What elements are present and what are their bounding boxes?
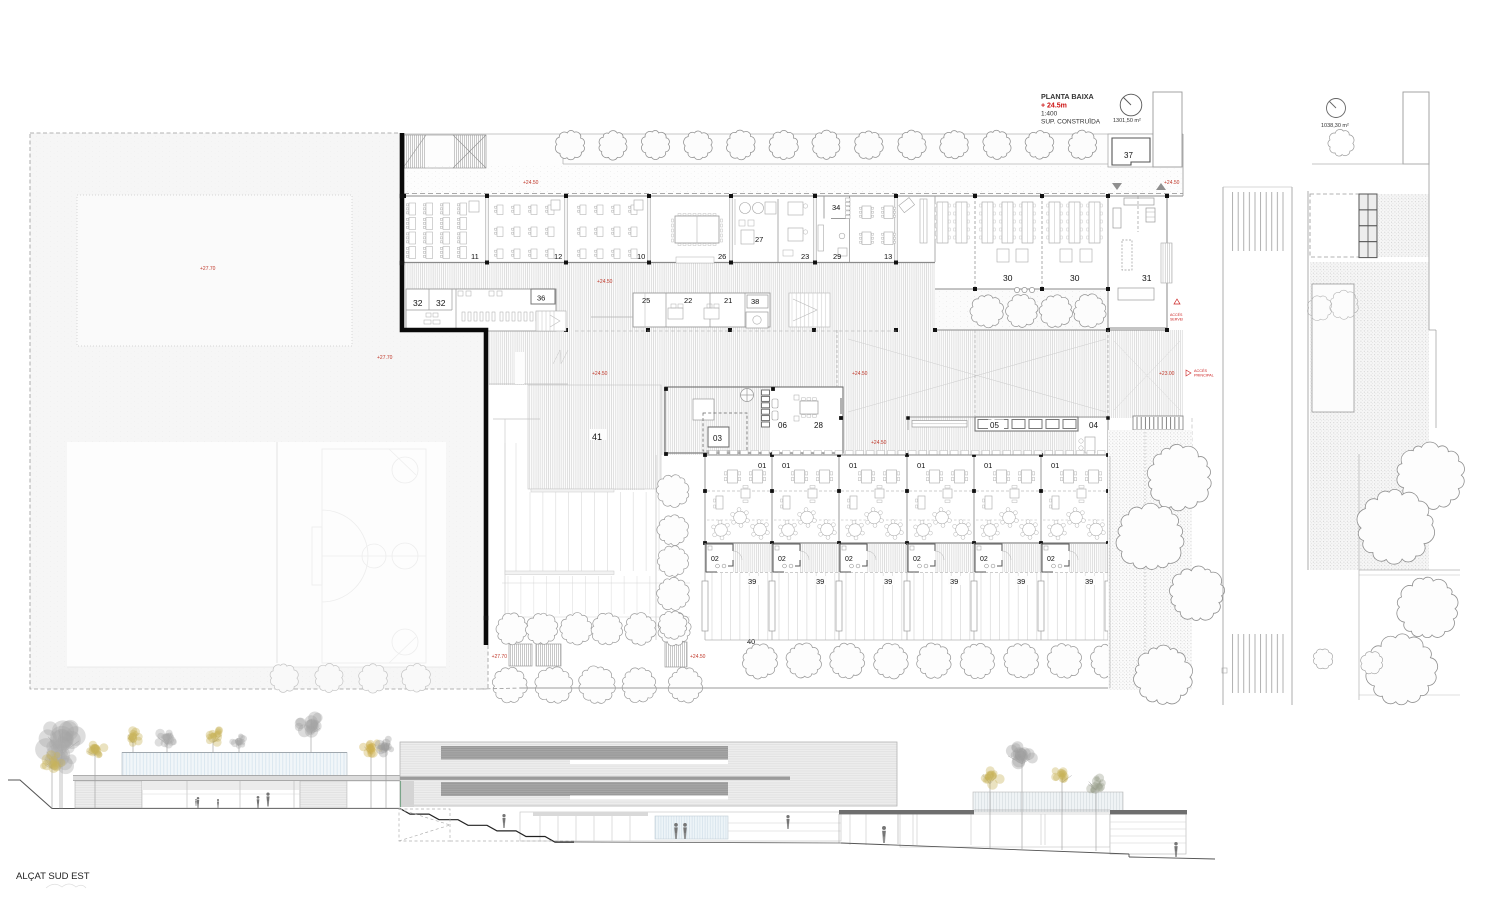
svg-text:05: 05 bbox=[990, 421, 999, 430]
svg-text:23: 23 bbox=[801, 252, 809, 261]
svg-text:+23.00: +23.00 bbox=[1159, 371, 1175, 377]
svg-text:+ 24.5m: + 24.5m bbox=[1041, 103, 1067, 110]
svg-text:02: 02 bbox=[980, 556, 988, 563]
svg-text:+24.50: +24.50 bbox=[852, 371, 868, 377]
svg-text:06: 06 bbox=[778, 421, 787, 430]
svg-text:1038,30 m²: 1038,30 m² bbox=[1321, 123, 1349, 129]
svg-text:01: 01 bbox=[1051, 461, 1059, 470]
svg-text:+24.50: +24.50 bbox=[1164, 180, 1180, 186]
svg-text:01: 01 bbox=[917, 461, 925, 470]
svg-text:01: 01 bbox=[849, 461, 857, 470]
svg-text:PRINCIPAL: PRINCIPAL bbox=[1194, 374, 1214, 378]
svg-text:38: 38 bbox=[751, 297, 759, 306]
svg-text:36: 36 bbox=[537, 294, 545, 303]
svg-text:29: 29 bbox=[833, 252, 841, 261]
svg-text:32: 32 bbox=[436, 298, 446, 308]
svg-text:39: 39 bbox=[1085, 577, 1093, 586]
svg-text:+24.50: +24.50 bbox=[523, 180, 539, 186]
svg-text:26: 26 bbox=[718, 252, 726, 261]
svg-text:39: 39 bbox=[950, 577, 958, 586]
svg-text:27: 27 bbox=[755, 235, 763, 244]
svg-text:39: 39 bbox=[884, 577, 892, 586]
svg-text:30: 30 bbox=[1003, 273, 1013, 283]
svg-text:28: 28 bbox=[814, 421, 823, 430]
svg-text:25: 25 bbox=[642, 296, 650, 305]
svg-text:32: 32 bbox=[413, 298, 423, 308]
svg-text:1:400: 1:400 bbox=[1041, 111, 1058, 118]
svg-text:34: 34 bbox=[832, 203, 840, 212]
svg-text:31: 31 bbox=[1142, 273, 1152, 283]
svg-text:01: 01 bbox=[984, 461, 992, 470]
svg-text:39: 39 bbox=[748, 577, 756, 586]
svg-text:10: 10 bbox=[637, 252, 645, 261]
svg-text:21: 21 bbox=[724, 296, 732, 305]
svg-text:ACCÉS: ACCÉS bbox=[1170, 312, 1183, 317]
svg-text:37: 37 bbox=[1124, 151, 1133, 160]
svg-text:30: 30 bbox=[1070, 273, 1080, 283]
svg-text:02: 02 bbox=[1047, 556, 1055, 563]
svg-text:04: 04 bbox=[1089, 421, 1098, 430]
svg-text:12: 12 bbox=[554, 252, 562, 261]
svg-text:+27.70: +27.70 bbox=[492, 654, 508, 660]
svg-text:13: 13 bbox=[884, 252, 892, 261]
svg-text:PLANTA BAIXA: PLANTA BAIXA bbox=[1041, 92, 1094, 101]
svg-text:+24.50: +24.50 bbox=[592, 371, 608, 377]
svg-text:+27.70: +27.70 bbox=[377, 355, 393, 361]
svg-text:02: 02 bbox=[778, 556, 786, 563]
svg-text:SUP. CONSTRUÏDA: SUP. CONSTRUÏDA bbox=[1041, 118, 1101, 126]
svg-text:39: 39 bbox=[1017, 577, 1025, 586]
svg-text:+24.50: +24.50 bbox=[690, 654, 706, 660]
svg-text:02: 02 bbox=[711, 556, 719, 563]
svg-text:+24.50: +24.50 bbox=[597, 279, 613, 285]
svg-text:+24.50: +24.50 bbox=[871, 440, 887, 446]
svg-text:39: 39 bbox=[816, 577, 824, 586]
svg-text:ALÇAT SUD EST: ALÇAT SUD EST bbox=[16, 871, 90, 882]
svg-text:+27.70: +27.70 bbox=[200, 266, 216, 272]
svg-text:02: 02 bbox=[845, 556, 853, 563]
svg-text:22: 22 bbox=[684, 296, 692, 305]
svg-text:11: 11 bbox=[471, 252, 479, 261]
svg-text:SERVEI: SERVEI bbox=[1170, 318, 1183, 322]
svg-text:02: 02 bbox=[913, 556, 921, 563]
svg-text:1301,50 m²: 1301,50 m² bbox=[1113, 118, 1141, 124]
svg-text:03: 03 bbox=[713, 434, 722, 443]
svg-text:01: 01 bbox=[782, 461, 790, 470]
svg-text:41: 41 bbox=[592, 432, 602, 442]
svg-text:ACCÉS: ACCÉS bbox=[1194, 368, 1208, 373]
svg-text:01: 01 bbox=[758, 461, 766, 470]
